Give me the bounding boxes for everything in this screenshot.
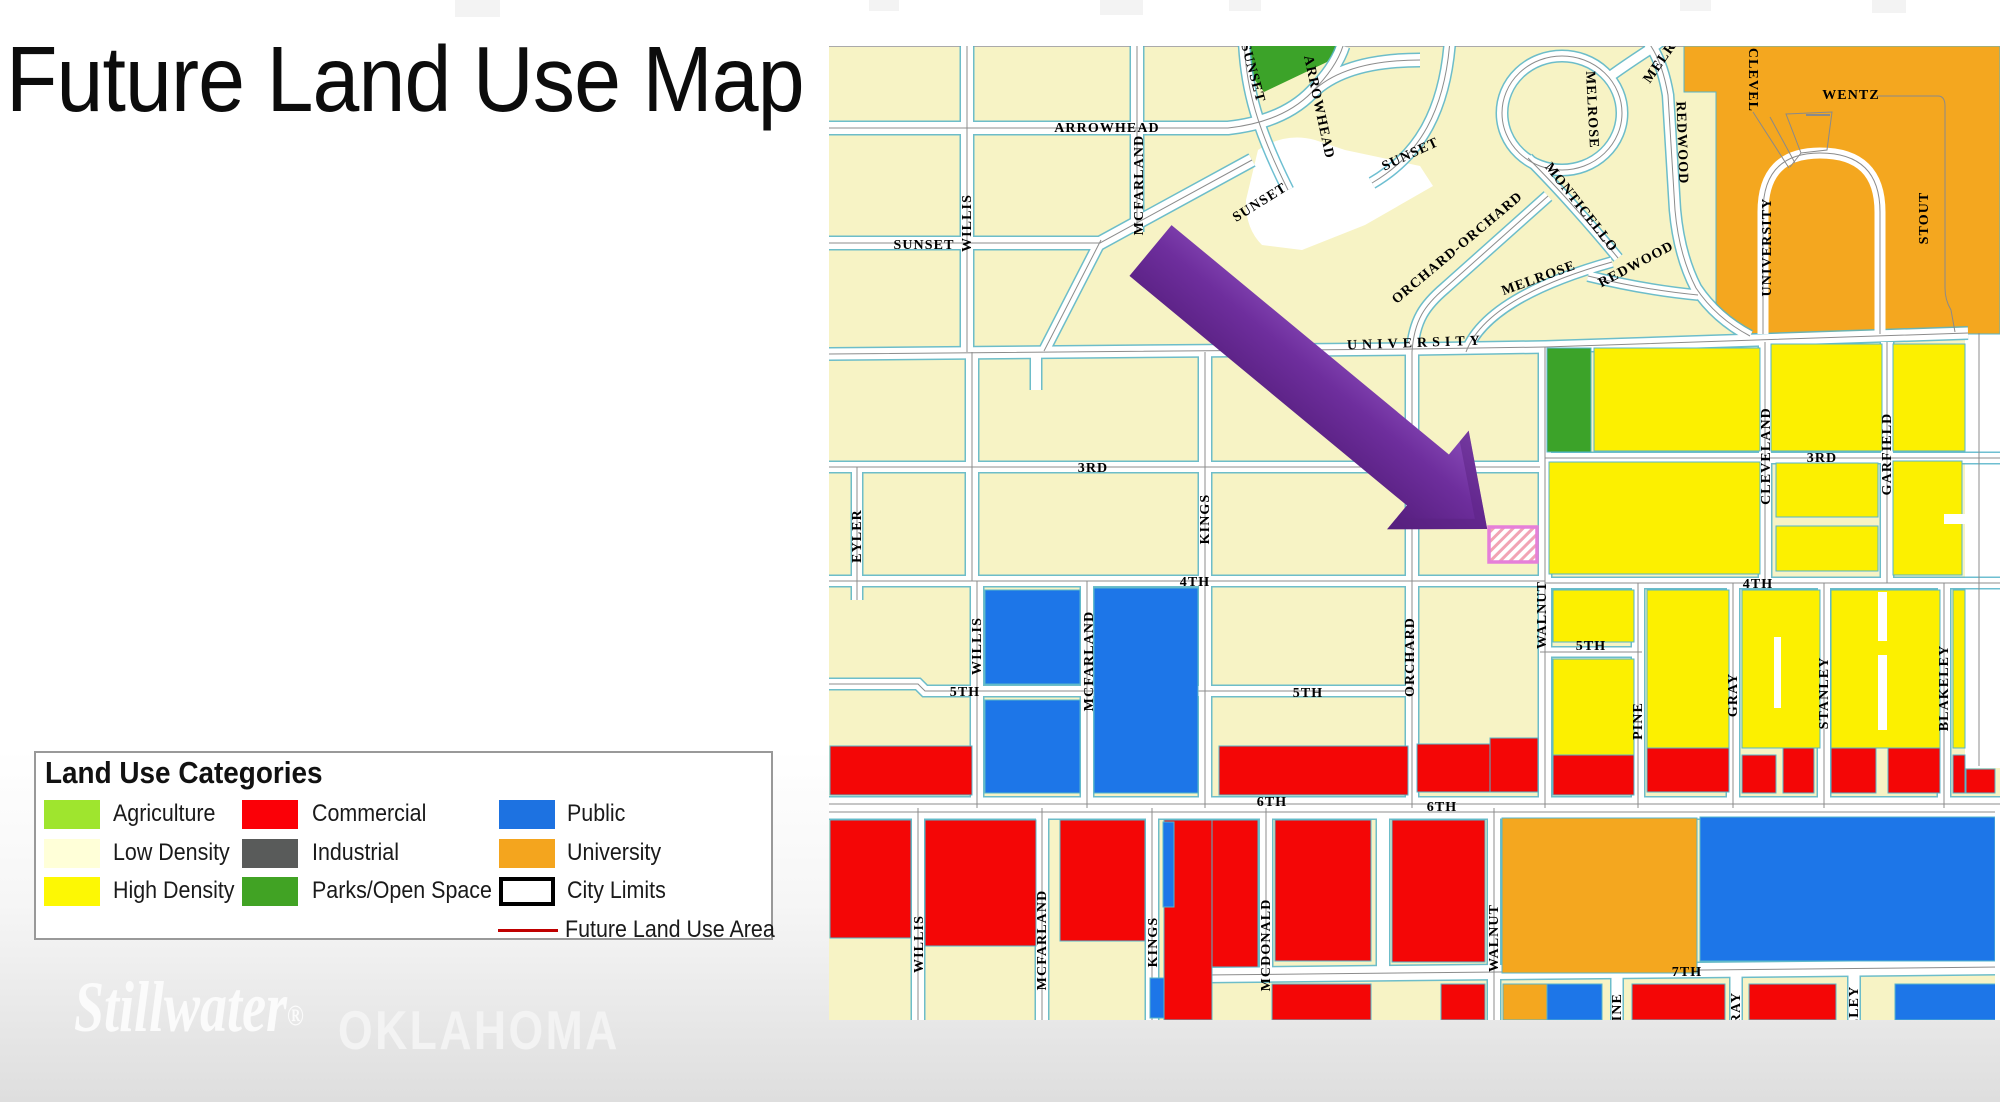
- svg-text:GARFIELD: GARFIELD: [1880, 413, 1895, 496]
- svg-text:KINGS: KINGS: [1146, 917, 1161, 968]
- svg-text:MCFARLAND: MCFARLAND: [1082, 611, 1097, 712]
- svg-text:WILLIS: WILLIS: [970, 617, 985, 675]
- svg-text:PINE: PINE: [1610, 993, 1625, 1031]
- svg-text:BLAKELEY: BLAKELEY: [1937, 645, 1952, 732]
- svg-text:STOUT: STOUT: [1917, 192, 1932, 245]
- svg-text:4TH: 4TH: [1743, 577, 1774, 592]
- svg-text:4TH: 4TH: [1180, 575, 1211, 590]
- svg-text:ORCHARD: ORCHARD: [1403, 617, 1418, 697]
- svg-text:REDWOOD: REDWOOD: [1673, 101, 1691, 185]
- svg-text:3RD: 3RD: [1078, 461, 1109, 476]
- svg-text:6TH: 6TH: [1257, 795, 1288, 810]
- svg-text:MCFARLAND: MCFARLAND: [1132, 135, 1147, 236]
- svg-text:MCDONALD: MCDONALD: [1259, 899, 1274, 992]
- svg-text:WALNUT: WALNUT: [1535, 581, 1550, 649]
- svg-text:WENTZ: WENTZ: [1822, 88, 1880, 103]
- svg-text:STANLEY: STANLEY: [1817, 657, 1832, 730]
- svg-text:GRAY: GRAY: [1729, 992, 1744, 1036]
- svg-text:5TH: 5TH: [950, 685, 981, 700]
- svg-text:KINGS: KINGS: [1198, 494, 1213, 545]
- svg-text:ARROWHEAD: ARROWHEAD: [1054, 121, 1160, 136]
- svg-text:EYLER: EYLER: [850, 509, 865, 563]
- svg-text:BLAKELEY: BLAKELEY: [1847, 986, 1862, 1073]
- svg-text:UNIVERSITY: UNIVERSITY: [1760, 198, 1775, 297]
- svg-text:PINE: PINE: [1631, 702, 1646, 740]
- svg-text:WILLIS: WILLIS: [912, 915, 927, 973]
- svg-text:5TH: 5TH: [1576, 639, 1607, 654]
- svg-text:7TH: 7TH: [1672, 965, 1703, 980]
- svg-text:MCFARLAND: MCFARLAND: [1035, 890, 1050, 991]
- svg-text:GRAY: GRAY: [1726, 673, 1741, 717]
- svg-text:WILLIS: WILLIS: [960, 194, 975, 252]
- svg-text:WALNUT: WALNUT: [1487, 904, 1502, 972]
- svg-text:CLEVEL: CLEVEL: [1745, 48, 1760, 112]
- svg-text:3RD: 3RD: [1807, 451, 1838, 466]
- svg-text:5TH: 5TH: [1293, 686, 1324, 701]
- svg-text:SUNSET: SUNSET: [893, 238, 954, 253]
- svg-text:6TH: 6TH: [1427, 800, 1458, 815]
- svg-text:CLEVELAND: CLEVELAND: [1759, 407, 1774, 505]
